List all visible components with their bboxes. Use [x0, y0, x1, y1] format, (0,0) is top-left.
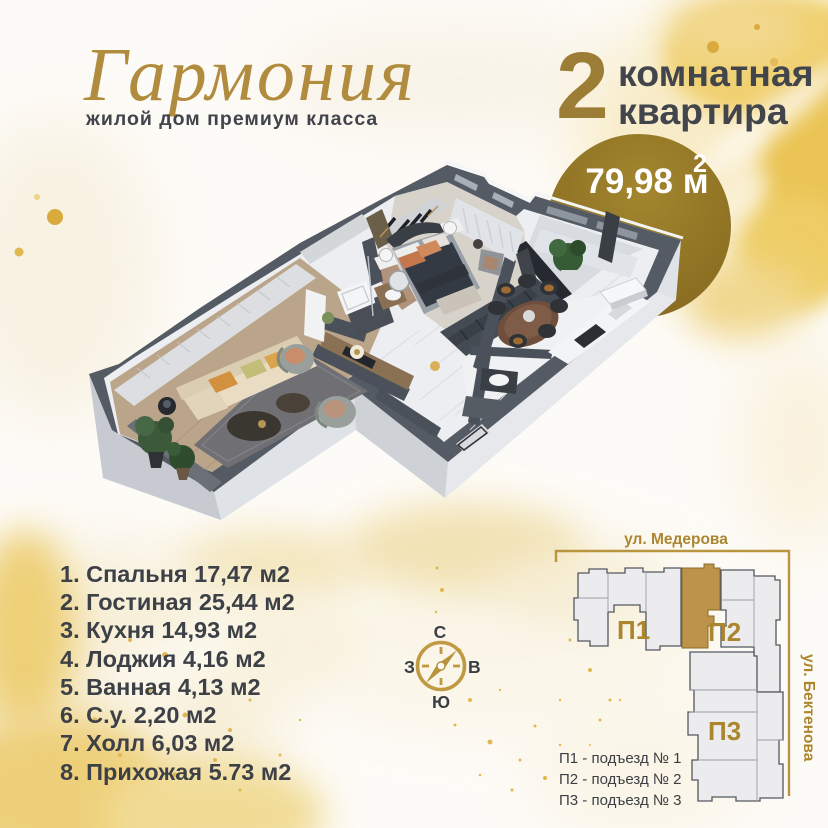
svg-text:ул. Бектенова: ул. Бектенова [800, 654, 817, 762]
svg-text:ул. Медерова: ул. Медерова [624, 531, 728, 548]
svg-text:П3 - подъезд № 3: П3 - подъезд № 3 [559, 792, 681, 809]
svg-text:2: 2 [693, 150, 707, 178]
svg-text:П1 - подъезд № 1: П1 - подъезд № 1 [559, 750, 681, 767]
svg-text:Ю: Ю [432, 692, 450, 712]
svg-text:79,98 м: 79,98 м [585, 162, 708, 201]
svg-text:7. Холл 6,03 м2: 7. Холл 6,03 м2 [60, 730, 234, 756]
svg-text:С: С [434, 622, 447, 642]
svg-text:4. Лоджия 4,16 м2: 4. Лоджия 4,16 м2 [60, 646, 266, 672]
svg-text:1. Спальня 17,47 м2: 1. Спальня 17,47 м2 [60, 561, 290, 587]
svg-text:2: 2 [556, 33, 609, 139]
svg-text:Гармония: Гармония [83, 33, 414, 117]
svg-text:2. Гостиная 25,44 м2: 2. Гостиная 25,44 м2 [60, 589, 295, 615]
svg-text:6. С.у. 2,20 м2: 6. С.у. 2,20 м2 [60, 702, 216, 728]
svg-text:П3: П3 [708, 716, 741, 746]
svg-text:5. Ванная 4,13 м2: 5. Ванная 4,13 м2 [60, 674, 261, 700]
svg-text:квартира: квартира [618, 90, 789, 132]
svg-text:П1: П1 [617, 615, 650, 645]
svg-text:3. Кухня 14,93 м2: 3. Кухня 14,93 м2 [60, 617, 257, 643]
svg-text:П2 - подъезд № 2: П2 - подъезд № 2 [559, 771, 681, 788]
svg-text:П2: П2 [708, 617, 741, 647]
svg-text:В: В [468, 657, 481, 677]
svg-text:комнатная: комнатная [618, 52, 814, 94]
svg-text:8. Прихожая 5.73 м2: 8. Прихожая 5.73 м2 [60, 759, 291, 785]
svg-text:жилой дом премиум класса: жилой дом премиум класса [85, 108, 378, 130]
svg-text:З: З [404, 657, 415, 677]
